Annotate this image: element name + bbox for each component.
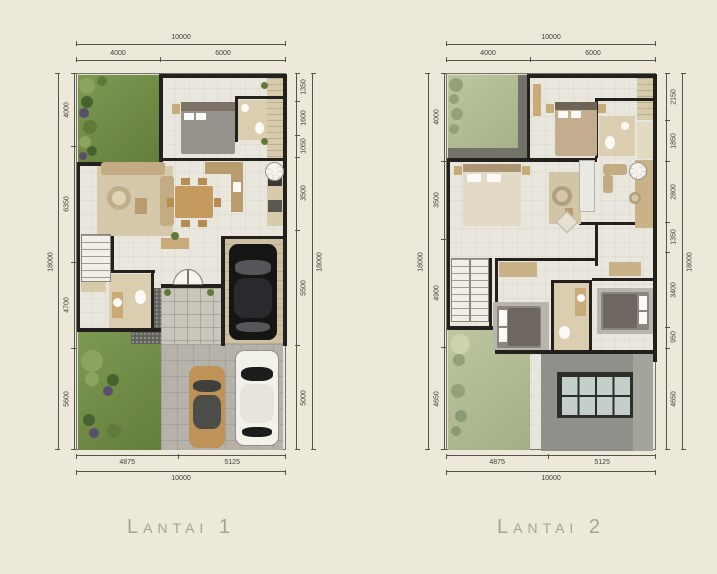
shrub-icon xyxy=(451,426,461,436)
dim-chain-right-segments-2: 2150 1850 2800 1350 3400 950 4650 xyxy=(666,73,679,450)
dim-chain-top-segments-1: 4000 6000 xyxy=(76,49,286,61)
dim-label: 3400 xyxy=(670,282,677,298)
dining-chair xyxy=(181,178,190,185)
dim-segment: 5500 xyxy=(296,230,309,345)
dining-chair xyxy=(198,220,207,227)
terrace-tiles xyxy=(161,288,221,344)
nightstand xyxy=(172,104,180,114)
dim-segment: 4000 xyxy=(446,49,530,61)
sofa xyxy=(101,162,165,175)
dim-segment: 4650 xyxy=(666,348,679,450)
caption-lantai-2: Lantai 2 xyxy=(446,516,656,539)
dim-label: 10000 xyxy=(76,34,286,41)
car-roof xyxy=(240,384,274,424)
dim-label: 2150 xyxy=(670,89,677,105)
car-windshield xyxy=(235,260,272,274)
sofa xyxy=(603,175,613,193)
sofa xyxy=(603,164,627,175)
shrub-icon xyxy=(81,96,93,108)
roof-deck-edge xyxy=(633,354,653,451)
sink xyxy=(621,122,629,130)
dim-segment: 2150 xyxy=(666,73,679,120)
pillow xyxy=(467,174,481,182)
shrub-icon xyxy=(83,414,95,426)
wall xyxy=(221,236,225,346)
wall xyxy=(595,98,653,101)
shrub-icon xyxy=(449,94,459,104)
armchair xyxy=(552,186,572,206)
stair-rail xyxy=(469,258,471,322)
dim-chain-left-segments-2: 4000 3500 4900 4650 xyxy=(432,73,445,450)
dining-table xyxy=(175,186,213,218)
dim-segment: 4875 xyxy=(446,455,548,467)
dim-segment: 5000 xyxy=(296,345,309,450)
wall xyxy=(235,96,238,142)
wall xyxy=(489,258,492,326)
dim-segment: 4700 xyxy=(62,262,75,348)
dim-label: 2800 xyxy=(670,184,677,200)
pillow xyxy=(499,310,507,326)
plant-icon xyxy=(164,289,171,296)
dim-label: 4000 xyxy=(64,102,71,118)
car-roof xyxy=(193,395,222,429)
shrub-icon xyxy=(451,108,463,120)
car-roof xyxy=(234,278,272,318)
dim-chain-bottom-total-2: 10000 xyxy=(446,471,656,483)
wall xyxy=(283,74,287,346)
shrub-icon xyxy=(83,120,97,134)
coffee-table xyxy=(135,198,147,214)
dim-label: 3500 xyxy=(434,192,441,208)
wall xyxy=(151,272,154,328)
pillow xyxy=(499,328,507,342)
dim-label: 10000 xyxy=(76,475,286,482)
shrub-icon xyxy=(449,78,463,92)
wall xyxy=(653,74,657,362)
wall xyxy=(589,280,592,352)
dim-label: 4650 xyxy=(670,391,677,407)
pillow xyxy=(487,174,501,182)
dim-label: 10000 xyxy=(446,34,656,41)
shrub-icon xyxy=(87,146,97,156)
vanity xyxy=(575,288,586,316)
dining-chair xyxy=(214,198,221,207)
dim-chain-left-total-2: 18000 xyxy=(416,73,429,450)
dining-chair xyxy=(167,198,174,207)
dim-label: 1050 xyxy=(300,138,307,154)
nightstand xyxy=(454,166,462,175)
dim-chain-top-segments-2: 4000 6000 xyxy=(446,49,656,61)
dim-segment: 1600 xyxy=(296,101,309,135)
nightstand xyxy=(522,166,530,175)
floor-plan-lantai-1 xyxy=(76,73,286,450)
pillow xyxy=(558,111,568,118)
dim-label: 18000 xyxy=(316,252,323,271)
bed-headboard xyxy=(463,164,521,172)
wall xyxy=(592,278,653,281)
flower-bed-icon xyxy=(79,108,89,118)
dim-label: 4000 xyxy=(446,50,530,57)
dim-segment: 4000 xyxy=(432,73,445,161)
skylight-window xyxy=(557,372,633,418)
wardrobe-strip xyxy=(267,78,283,158)
shrub-icon xyxy=(449,124,459,134)
wall xyxy=(447,158,450,330)
wall xyxy=(595,222,598,266)
dim-label: 1600 xyxy=(300,110,307,126)
dim-label: 4650 xyxy=(434,391,441,407)
bed-headboard xyxy=(181,102,235,111)
toilet xyxy=(559,326,570,339)
tall-cabinet xyxy=(579,160,595,212)
dim-segment: 950 xyxy=(666,327,679,348)
dim-segment: 10000 xyxy=(446,471,656,483)
nightstand xyxy=(546,104,554,113)
dim-segment: 4000 xyxy=(76,49,160,61)
toilet xyxy=(255,122,264,134)
dim-label: 18000 xyxy=(48,252,55,271)
pillow xyxy=(639,296,647,310)
dim-chain-left-total-1: 18000 xyxy=(46,73,59,450)
dim-segment: 5600 xyxy=(62,348,75,450)
dim-label: 1850 xyxy=(670,133,677,149)
flower-bed-icon xyxy=(79,152,87,160)
dim-label: 6350 xyxy=(64,196,71,212)
floor-plan-sheet: 10000 4000 6000 18000 4000 6350 4700 560… xyxy=(0,0,717,574)
wardrobe xyxy=(499,262,537,277)
shrub-icon xyxy=(453,354,465,366)
dresser xyxy=(533,84,541,116)
dim-segment: 4900 xyxy=(432,239,445,347)
bed-blanket xyxy=(508,308,540,346)
dim-segment: 10000 xyxy=(76,33,286,45)
wall xyxy=(111,234,114,272)
desk-chair xyxy=(629,192,641,204)
entry-door-right xyxy=(188,269,203,285)
dim-label: 1350 xyxy=(300,79,307,95)
pillow xyxy=(571,111,581,118)
bed-blanket xyxy=(603,294,637,328)
pillow xyxy=(196,113,206,120)
car-windshield xyxy=(241,367,273,381)
dim-label: 5125 xyxy=(548,459,656,466)
dim-label: 5125 xyxy=(178,459,286,466)
dim-chain-bottom-segments-2: 4875 5125 xyxy=(446,455,656,467)
shrub-icon xyxy=(107,424,121,438)
wall xyxy=(495,258,595,261)
dim-chain-right-total-2: 18000 xyxy=(682,73,695,450)
dim-segment: 5125 xyxy=(548,455,656,467)
dim-segment: 1350 xyxy=(666,222,679,252)
nightstand xyxy=(598,104,606,113)
dim-segment: 10000 xyxy=(446,33,656,45)
dim-segment: 4000 xyxy=(62,73,75,146)
dim-label: 4875 xyxy=(76,459,178,466)
dim-segment: 3400 xyxy=(666,252,679,327)
dim-chain-right-total-1: 18000 xyxy=(312,73,325,450)
dim-label: 4875 xyxy=(446,459,548,466)
dim-segment: 18000 xyxy=(682,73,695,450)
dim-label: 1350 xyxy=(670,230,677,246)
dim-chain-top-total-2: 10000 xyxy=(446,33,656,45)
dim-segment: 3500 xyxy=(296,157,309,230)
closet xyxy=(637,122,653,158)
dim-segment: 6000 xyxy=(530,49,656,61)
dim-label: 5500 xyxy=(300,280,307,296)
shrub-icon xyxy=(450,334,470,354)
wall xyxy=(159,74,163,164)
shrub-icon xyxy=(85,372,99,386)
sink xyxy=(577,294,585,302)
dim-label: 4000 xyxy=(434,109,441,125)
car-rear-window xyxy=(242,427,271,437)
dim-label: 5600 xyxy=(64,391,71,407)
wall xyxy=(161,158,285,161)
dining-chair xyxy=(198,178,207,185)
shrub-icon xyxy=(451,384,465,398)
dining-chair xyxy=(181,220,190,227)
dim-label: 6000 xyxy=(530,50,656,57)
armchair xyxy=(107,186,131,210)
car-tan xyxy=(189,366,225,448)
ceiling-fan-icon xyxy=(265,162,284,181)
dim-label: 10000 xyxy=(446,475,656,482)
dim-label: 6000 xyxy=(160,50,286,57)
car-rear-window xyxy=(236,322,270,333)
sink xyxy=(241,104,249,112)
car-black xyxy=(229,244,277,340)
bed-headboard xyxy=(555,102,597,110)
plant-icon xyxy=(207,289,214,296)
plant-icon xyxy=(171,232,179,240)
dim-label: 5000 xyxy=(300,390,307,406)
dim-segment: 2800 xyxy=(666,161,679,223)
dim-segment: 5125 xyxy=(178,455,286,467)
sink xyxy=(113,298,122,307)
dim-segment: 18000 xyxy=(312,73,325,450)
dim-chain-left-segments-1: 4000 6350 4700 5600 xyxy=(62,73,75,450)
shrub-icon xyxy=(107,374,119,386)
shrub-icon xyxy=(79,78,95,94)
shrub-icon xyxy=(97,76,107,86)
wall xyxy=(551,280,554,352)
pillow xyxy=(639,312,647,324)
entry-door-left xyxy=(173,269,188,285)
shrub-icon xyxy=(455,410,467,422)
wall xyxy=(77,162,80,332)
toilet xyxy=(135,290,146,304)
dim-chain-bottom-segments-1: 4875 5125 xyxy=(76,455,286,467)
wall xyxy=(221,236,283,239)
dim-label: 3500 xyxy=(300,186,307,202)
dim-segment: 6350 xyxy=(62,146,75,262)
dim-label: 18000 xyxy=(418,252,425,271)
wall xyxy=(77,328,161,332)
dim-chain-right-segments-1: 1350 1600 1050 3500 5500 5000 xyxy=(296,73,309,450)
dim-segment: 10000 xyxy=(76,471,286,483)
wall xyxy=(551,280,592,283)
toilet xyxy=(605,136,615,149)
wall xyxy=(529,74,657,78)
wardrobe xyxy=(609,262,641,276)
car-white xyxy=(235,350,279,446)
bathroom-top-right xyxy=(599,116,635,156)
plant-icon xyxy=(261,138,268,145)
dim-label: 4700 xyxy=(64,297,71,313)
plant-icon xyxy=(261,82,268,89)
pillow xyxy=(184,113,194,120)
flower-bed-icon xyxy=(103,386,113,396)
car-windshield xyxy=(193,380,220,392)
dim-segment: 1050 xyxy=(296,135,309,157)
dim-segment: 4650 xyxy=(432,347,445,450)
floor-plan-lantai-2 xyxy=(446,73,656,450)
staircase xyxy=(81,234,111,282)
wall xyxy=(527,74,530,159)
dim-label: 950 xyxy=(670,331,677,343)
dim-label: 18000 xyxy=(686,252,693,271)
dim-chain-bottom-total-1: 10000 xyxy=(76,471,286,483)
dim-chain-top-total-1: 10000 xyxy=(76,33,286,45)
caption-lantai-1: Lantai 1 xyxy=(76,516,286,539)
shrub-icon xyxy=(81,350,103,372)
wall xyxy=(447,158,597,162)
ceiling-fan-icon xyxy=(629,162,647,180)
dim-segment: 4875 xyxy=(76,455,178,467)
refrigerator xyxy=(268,200,282,212)
kitchen-sink xyxy=(233,182,241,192)
dim-segment: 1850 xyxy=(666,120,679,161)
dim-label: 4000 xyxy=(76,50,160,57)
wall xyxy=(495,350,653,354)
dim-segment: 6000 xyxy=(160,49,286,61)
dim-segment: 3500 xyxy=(432,161,445,238)
dim-segment: 18000 xyxy=(416,73,429,450)
dim-label: 4900 xyxy=(434,285,441,301)
wall xyxy=(235,96,285,99)
dim-segment: 1350 xyxy=(296,73,309,101)
wall xyxy=(161,74,287,78)
dim-segment: 18000 xyxy=(46,73,59,450)
flower-bed-icon xyxy=(89,428,99,438)
